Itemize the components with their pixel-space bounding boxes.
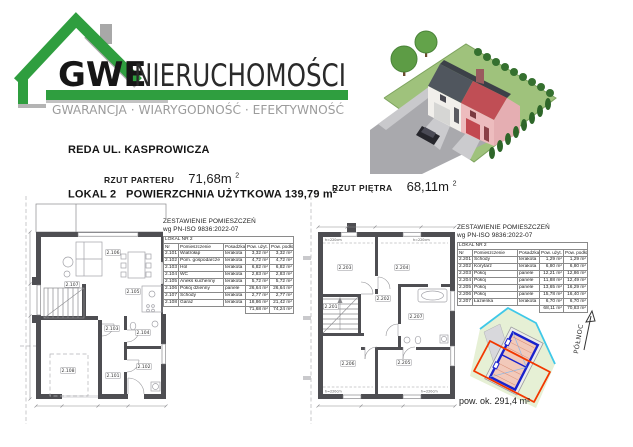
table-row: 2.202Korytarzterakota6,80 m²6,80 m² xyxy=(458,264,588,271)
listing-address: REDA UL. KASPROWICZA xyxy=(68,144,337,158)
room-label-utility: 2.102 xyxy=(137,364,151,370)
table-cell: Pokój xyxy=(473,285,518,292)
svg-text:2.105: 2.105 xyxy=(127,289,140,295)
chimney xyxy=(476,69,484,84)
table-heading-2: wg PN-ISO 9836:2022-07 xyxy=(163,226,295,234)
table-cell: Wiatrołap xyxy=(179,251,224,258)
table-header-row: NrPomieszczeniePosadzkaPow. użyt.Pow. po… xyxy=(164,244,294,251)
room-label-203: 2.203 xyxy=(338,265,352,271)
stairs xyxy=(323,297,358,333)
height-note-se: h=220cm xyxy=(421,390,438,394)
table-cell: 2,77 m² xyxy=(246,293,270,300)
table-header-cell: Posadzka xyxy=(224,244,246,251)
table-row: 2.205Pokójpanele13,65 m²16,29 m² xyxy=(458,285,588,292)
svg-text:2.204: 2.204 xyxy=(396,265,409,271)
room-label-hall: 2.103 xyxy=(105,326,119,332)
table-cell: 16,29 m² xyxy=(564,285,588,292)
stairs xyxy=(44,288,84,318)
bathtub xyxy=(422,291,444,300)
table-cell: 26,64 m² xyxy=(246,286,270,293)
table-cell: terakota xyxy=(224,272,246,279)
table-cell: 12,86 m² xyxy=(564,271,588,278)
svg-text:2.102: 2.102 xyxy=(138,364,151,370)
door-swings xyxy=(361,277,415,359)
table-cell: 2,83 m² xyxy=(246,272,270,279)
table-unit-row: LOKAL NR 2 xyxy=(458,243,588,250)
room-label-stairs: 2.107 xyxy=(65,282,79,288)
brand-suffix-text: NIERUCHOMOŚCI xyxy=(134,57,346,94)
table-cell: 2.108 xyxy=(164,300,179,307)
svg-text:2.203: 2.203 xyxy=(339,265,352,271)
table-cell: Garaż xyxy=(179,300,224,307)
svg-text:2.106: 2.106 xyxy=(107,250,120,256)
table-cell: 2,77 m² xyxy=(270,293,294,300)
svg-text:2.108: 2.108 xyxy=(62,368,75,374)
table-cell: WC xyxy=(179,272,224,279)
room-label-202: 2.202 xyxy=(376,296,390,302)
interior-walls xyxy=(41,284,161,394)
svg-text:2.206: 2.206 xyxy=(342,361,355,367)
table-cell xyxy=(224,307,246,314)
table-cell: panele xyxy=(518,285,540,292)
room-label-206: 2.206 xyxy=(341,361,355,367)
table-cell: 18,86 m² xyxy=(246,300,270,307)
svg-text:2.201: 2.201 xyxy=(325,304,338,310)
table-cell: panele xyxy=(518,278,540,285)
table-row: 2.203Pokójpanele12,21 m²12,86 m² xyxy=(458,271,588,278)
entry-door-right xyxy=(484,126,489,142)
chimney-block xyxy=(347,223,356,232)
table-cell: Korytarz xyxy=(473,264,518,271)
table-header-cell: Pomieszczenie xyxy=(473,250,518,257)
ground-floor-area: 71,68m 2 xyxy=(188,171,239,186)
wall-shadow xyxy=(18,104,46,108)
table-cell: 6,80 m² xyxy=(564,264,588,271)
table-row: 71,68 m²74,24 m² xyxy=(164,307,294,314)
table-cell: terakota xyxy=(518,264,540,271)
table-row: 2.104WCterakota2,83 m²2,83 m² xyxy=(164,272,294,279)
table-row: 2.108Garażterakota18,86 m²21,42 m² xyxy=(164,300,294,307)
table-header-cell: Nr xyxy=(164,244,179,251)
table-header-cell: Pow. użyt. xyxy=(540,250,564,257)
table-cell: 26,64 m² xyxy=(270,286,294,293)
room-label-207: 2.207 xyxy=(409,314,423,320)
table-cell: terakota xyxy=(224,300,246,307)
entry-door-left xyxy=(454,107,459,124)
table-header-cell: Pow. podłog xyxy=(270,244,294,251)
table-row: 2.106Pokój dziennypanele26,64 m²26,64 m² xyxy=(164,286,294,293)
bath-toilet xyxy=(415,336,421,344)
table-cell: 2.106 xyxy=(164,286,179,293)
table-cell: Pokój xyxy=(473,271,518,278)
svg-text:2.104: 2.104 xyxy=(137,330,150,336)
house-3d-render xyxy=(370,2,566,174)
table-cell: 2.203 xyxy=(458,271,473,278)
svg-text:2.202: 2.202 xyxy=(377,296,390,302)
table-cell: 13,65 m² xyxy=(540,285,564,292)
table-cell: 2.105 xyxy=(164,279,179,286)
table-cell: 5,72 m² xyxy=(270,279,294,286)
windows xyxy=(341,233,454,399)
table-cell xyxy=(164,307,179,314)
table-cell: 21,42 m² xyxy=(270,300,294,307)
table-cell: terakota xyxy=(224,265,246,272)
ground-floor-title-label: RZUT PARTERU xyxy=(104,175,174,185)
svg-text:2.207: 2.207 xyxy=(410,314,423,320)
neighbor-unit-hint xyxy=(303,256,311,380)
site-area-label: pow. ok. 291,4 m² xyxy=(459,396,530,406)
table-cell: terakota xyxy=(224,251,246,258)
upper-floor-title: RZUT PIĘTRA 68,11m 2 xyxy=(332,179,457,194)
table-row: 2.107Schodyterakota2,77 m²2,77 m² xyxy=(164,293,294,300)
table-cell: 2.107 xyxy=(164,293,179,300)
garage-car-space xyxy=(50,354,88,396)
table-cell: terakota xyxy=(224,279,246,286)
ground-floor-plan: 2.106 2.107 2.105 2.103 2.104 2.101 2.10… xyxy=(20,196,170,424)
table-cell: 6,82 m² xyxy=(270,265,294,272)
table-header-cell: Pow. podłog xyxy=(564,250,588,257)
table-cell: 74,24 m² xyxy=(270,307,294,314)
table-cell: Pom. gospodarcze xyxy=(179,258,224,265)
svg-text:2.103: 2.103 xyxy=(106,326,119,332)
ground-floor-title: RZUT PARTERU 71,68m 2 xyxy=(104,171,239,186)
table-cell: 2.205 xyxy=(458,285,473,292)
north-arrow: PÓŁNOC xyxy=(571,311,595,354)
room-label-living: 2.106 xyxy=(106,250,120,256)
ground-floor-table-box: ZESTAWIENIE POMIESZCZEŃ wg PN-ISO 9836:2… xyxy=(163,218,295,314)
table-cell: 71,68 m² xyxy=(246,307,270,314)
svg-text:2.101: 2.101 xyxy=(107,373,120,379)
table-cell: 11,88 m² xyxy=(540,278,564,285)
table-cell: 12,49 m² xyxy=(564,278,588,285)
table-row: 2.204Pokójpanele11,88 m²12,49 m² xyxy=(458,278,588,285)
dining-table xyxy=(128,252,145,278)
table-header-cell: Pow. użyt. xyxy=(246,244,270,251)
interior-walls xyxy=(318,237,450,394)
table-cell: 2.101 xyxy=(164,251,179,258)
wall-shape xyxy=(18,78,28,104)
height-note-ne: h=220cm xyxy=(413,238,430,242)
kitchen-counter xyxy=(142,286,162,312)
property-line-dashed xyxy=(20,196,36,424)
dimension-lines xyxy=(317,226,457,408)
table-cell: 1,29 m² xyxy=(540,257,564,264)
upper-floor-title-label: RZUT PIĘTRA xyxy=(332,183,393,193)
table-cell: 2.102 xyxy=(164,258,179,265)
table-cell: panele xyxy=(518,271,540,278)
table-row: 2.101Wiatrołapterakota3,32 m²3,32 m² xyxy=(164,251,294,258)
table-cell: 2.204 xyxy=(458,278,473,285)
table-cell: Hol xyxy=(179,265,224,272)
flyer-page: GWE NIERUCHOMOŚCI GWARANCJA · WIARYGODNO… xyxy=(0,0,633,447)
table-cell: 6,82 m² xyxy=(246,265,270,272)
table-row: 2.105Aneks kuchennyterakota5,72 m²5,72 m… xyxy=(164,279,294,286)
room-label-204: 2.204 xyxy=(395,265,409,271)
room-label-wc: 2.104 xyxy=(136,330,150,336)
table-cell: 2.201 xyxy=(458,257,473,264)
ground-floor-table: LOKAL NR 2 NrPomieszczeniePosadzkaPow. u… xyxy=(163,236,294,314)
outer-walls xyxy=(318,223,455,399)
table-cell: 3,32 m² xyxy=(270,251,294,258)
terrace-outline xyxy=(36,204,166,232)
table-heading-2: wg PN-ISO 9836:2022-07 xyxy=(457,232,589,240)
table-cell: 12,21 m² xyxy=(540,271,564,278)
table-cell: terakota xyxy=(224,258,246,265)
table-cell: 6,80 m² xyxy=(540,264,564,271)
table-cell: Pokój xyxy=(473,278,518,285)
table-cell: 5,72 m² xyxy=(246,279,270,286)
room-label-vestibule: 2.101 xyxy=(106,373,120,379)
table-cell: 3,32 m² xyxy=(246,251,270,258)
wc-sink xyxy=(152,321,158,327)
north-label: PÓŁNOC xyxy=(571,323,585,354)
gwe-logo: GWE NIERUCHOMOŚCI GWARANCJA · WIARYGODNO… xyxy=(10,6,362,116)
upper-floor-area: 68,11m 2 xyxy=(407,179,457,194)
table-heading-1: ZESTAWIENIE POMIESZCZEŃ xyxy=(163,218,295,226)
table-cell: 2.202 xyxy=(458,264,473,271)
room-label-kitchen: 2.105 xyxy=(126,289,140,295)
table-cell: 1,29 m² xyxy=(564,257,588,264)
table-cell: 2.104 xyxy=(164,272,179,279)
room-label-205: 2.205 xyxy=(397,360,411,366)
table-cell xyxy=(179,307,224,314)
table-unit-label: LOKAL NR 2 xyxy=(164,237,294,244)
wc-toilet xyxy=(130,322,136,330)
table-cell: Schody xyxy=(179,293,224,300)
table-cell: terakota xyxy=(518,257,540,264)
table-header-cell: Posadzka xyxy=(518,250,540,257)
garage-door-opening xyxy=(62,395,98,398)
svg-text:2.205: 2.205 xyxy=(398,360,411,366)
room-label-201: 2.201 xyxy=(324,304,338,310)
height-note-sw: h=220cm xyxy=(325,390,342,394)
table-unit-row: LOKAL NR 2 xyxy=(164,237,294,244)
table-unit-label: LOKAL NR 2 xyxy=(458,243,588,250)
table-row: 2.201Schodyterakota1,29 m²1,29 m² xyxy=(458,257,588,264)
bath-sink xyxy=(404,337,410,343)
table-cell: terakota xyxy=(224,293,246,300)
table-header-cell: Pomieszczenie xyxy=(179,244,224,251)
table-cell: panele xyxy=(224,286,246,293)
height-note-nw: h=220cm xyxy=(325,238,342,242)
table-cell: Aneks kuchenny xyxy=(179,279,224,286)
tagline-text: GWARANCJA · WIARYGODNOŚĆ · EFEKTYWNOŚĆ xyxy=(52,102,344,116)
table-cell: Schody xyxy=(473,257,518,264)
table-cell: 2,83 m² xyxy=(270,272,294,279)
table-header-cell: Nr xyxy=(458,250,473,257)
table-cell: 4,72 m² xyxy=(246,258,270,265)
table-row: 2.102Pom. gospodarczeterakota4,72 m²4,72… xyxy=(164,258,294,265)
table-cell: Pokój dzienny xyxy=(179,286,224,293)
svg-text:2.107: 2.107 xyxy=(66,282,79,288)
table-cell: 4,72 m² xyxy=(270,258,294,265)
room-label-garage: 2.108 xyxy=(61,368,75,374)
table-heading-1: ZESTAWIENIE POMIESZCZEŃ xyxy=(457,224,589,232)
table-row: 2.103Holterakota6,82 m²6,82 m² xyxy=(164,265,294,272)
upper-floor-plan: h=220cm h=220cm h=220cm h=220cm xyxy=(303,196,458,424)
table-cell: 2.103 xyxy=(164,265,179,272)
table-header-row: NrPomieszczeniePosadzkaPow. użyt.Pow. po… xyxy=(458,250,588,257)
